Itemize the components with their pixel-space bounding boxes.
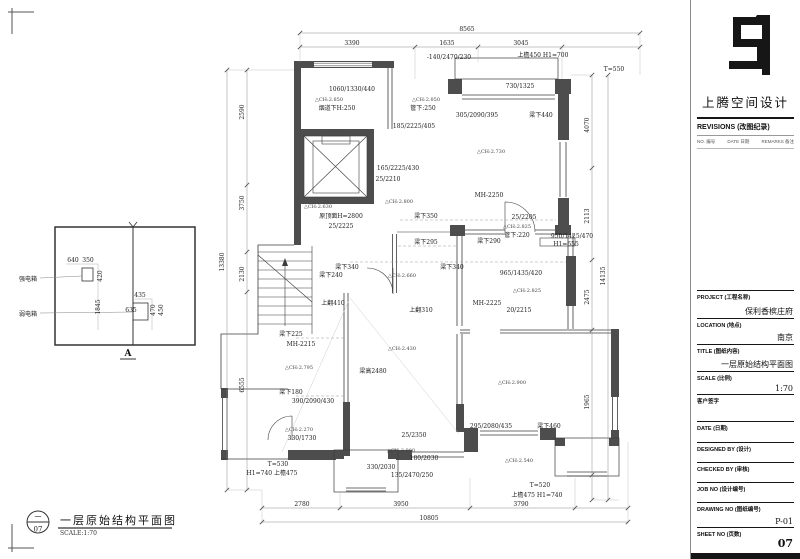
plan-annotation: 梁下240	[319, 271, 343, 279]
plan-annotation: 25/2205	[512, 214, 537, 221]
title-block-sidebar: 上腾空间设计 REVISIONS (改图纪录) NO. 编号 DATE 日期 R…	[690, 0, 800, 559]
plan-annotation: △CH:2.900	[498, 380, 526, 386]
plan-annotation: H1=655	[553, 241, 579, 248]
plan-annotation: △CH:2.850	[412, 97, 440, 103]
plan-annotation: 25/2210	[376, 176, 401, 183]
plan-annotation: 25/2225	[329, 223, 354, 230]
plan-annotation: T=520	[530, 482, 551, 489]
window-topleft	[314, 62, 372, 67]
plan-annotation: 435	[134, 292, 146, 299]
plan-annotation: 管下:220	[504, 231, 530, 239]
plan-annotation: 965/1435/420	[500, 270, 542, 277]
plan-annotation: 165/2225/430	[377, 165, 419, 172]
annotations-layer: 8565339016353045-140/2470/230上檐450 H1=70…	[19, 26, 624, 522]
field-title-value: 一层原始结构平面图	[721, 359, 793, 370]
field-job-no-label: JOB NO (设计编号)	[697, 483, 794, 493]
field-scale: SCALE (比例) 1:70	[697, 371, 794, 394]
plan-annotation: 1845	[95, 299, 102, 314]
floor-plan-svg: 一 07 一层原始结构平面图 SCALE:1:70 85653390163530…	[0, 0, 690, 559]
plan-annotation: MH-2215	[287, 341, 316, 348]
plan-annotation: 295/2080/435	[470, 423, 512, 430]
field-location-value: 南京	[777, 332, 793, 343]
field-project-value: 保利香槟庄府	[745, 306, 793, 317]
plan-annotation: A	[124, 349, 133, 359]
revisions-col-date: DATE 日期	[727, 139, 749, 145]
plan-annotation: 1965	[584, 394, 591, 409]
field-title: TITLE (图纸内容) 一层原始结构平面图	[697, 344, 794, 371]
plan-annotation: 470	[150, 304, 157, 316]
revisions-col-no: NO. 编号	[697, 139, 715, 145]
field-client-signature-label: 客户签字	[697, 395, 794, 405]
plan-annotation: 上檐450 H1=700	[518, 51, 569, 59]
plan-annotation: △CH:2.795	[285, 365, 313, 371]
bottom-bar	[691, 553, 800, 559]
walls-layer	[221, 61, 619, 460]
plan-annotation: △CH:2.430	[388, 346, 416, 352]
field-title-label: TITLE (图纸内容)	[697, 345, 794, 355]
field-designed-by-label: DESIGNED BY (设计)	[697, 443, 794, 453]
plan-annotation: 2475	[584, 289, 591, 304]
plan-annotation: 4070	[584, 117, 591, 132]
field-drawing-no-label: DRAWING NO (图纸编号)	[697, 503, 794, 513]
field-project: PROJECT (工程名称) 保利香槟庄府	[697, 290, 794, 318]
company-name: 上腾空间设计	[697, 90, 794, 117]
plan-annotation: 弱电箱	[19, 310, 37, 318]
plan-annotation: 330/1730	[288, 435, 317, 442]
field-sheet-no-value: 07	[778, 537, 793, 550]
plan-annotation: 420	[97, 270, 104, 282]
plan-annotation: 3950	[393, 501, 408, 508]
plan-annotation: 6555	[239, 377, 246, 392]
field-drawing-no-value: P-01	[775, 517, 793, 526]
plan-annotation: 640	[67, 257, 79, 264]
plan-annotation: 3750	[239, 195, 246, 210]
field-drawing-no: DRAWING NO (图纸编号) P-01	[697, 502, 794, 527]
plan-annotation: 350	[82, 257, 94, 264]
plan-annotation: △CH:2.800	[385, 199, 413, 205]
plan-annotation: 390/2090/430	[292, 398, 334, 405]
plan-annotation: MH-2225	[473, 300, 502, 307]
plan-annotation: △CH:2.825	[513, 288, 541, 294]
plan-annotation: 梁下295	[414, 238, 438, 246]
plan-annotation: 2113	[584, 208, 591, 223]
plan-annotation: T=550	[604, 66, 625, 73]
plan-annotation: 25/2350	[402, 432, 427, 439]
company-logo	[697, 4, 794, 90]
plan-annotation: H1=740 上檐475	[247, 469, 298, 477]
legend-circle-bottom: 07	[34, 526, 43, 534]
field-sheet-no: SHEET NO (页数) 07	[697, 527, 794, 551]
plan-annotation: 上翻310	[409, 306, 433, 314]
field-date-label: DATE (日期)	[697, 422, 794, 432]
field-designed-by: DESIGNED BY (设计)	[697, 442, 794, 462]
plan-annotation: 梁下340	[335, 263, 359, 271]
field-scale-value: 1:70	[775, 384, 793, 393]
plan-annotation: 管下:250	[410, 104, 436, 112]
beam-lines	[282, 220, 566, 452]
plan-annotation: 梁下225	[279, 330, 303, 338]
drawing-sheet: 一 07 一层原始结构平面图 SCALE:1:70 85653390163530…	[0, 0, 800, 559]
plan-annotation: 梁下350	[414, 212, 438, 220]
plan-annotation: 10805	[419, 515, 438, 522]
plan-annotation: 180/2030	[410, 455, 439, 462]
plan-annotation: 2780	[294, 501, 309, 508]
plan-annotation: △CH:2.630	[304, 204, 332, 210]
field-scale-label: SCALE (比例)	[697, 372, 794, 382]
plan-annotation: 13380	[219, 252, 226, 271]
field-location-label: LOCATION (地点)	[697, 319, 794, 329]
plan-annotation: 2130	[239, 266, 246, 281]
plan-annotation: 烟道下H:250	[319, 104, 356, 112]
plan-annotation: △CH:2.540	[505, 458, 533, 464]
plan-annotation: 730/1325	[506, 83, 535, 90]
legend-title: 一层原始结构平面图	[60, 513, 177, 527]
plan-annotation: -140/2470/230	[427, 54, 471, 61]
plan-annotation: 1060/1330/440	[329, 86, 375, 93]
plan-annotation: 强电箱	[19, 275, 37, 283]
revisions-title: REVISIONS (改图纪录)	[697, 122, 794, 136]
plan-annotation: 305/2090/395	[456, 112, 498, 119]
st-logo-icon	[707, 11, 785, 83]
plan-annotation: △CH:2.825	[503, 224, 531, 230]
plan-annotation: △CH:2.730	[477, 149, 505, 155]
field-location: LOCATION (地点) 南京	[697, 318, 794, 344]
detail-box	[40, 222, 195, 359]
plan-annotation: 135/2470/250	[391, 472, 433, 479]
plan-annotation: △CH:2.660	[388, 273, 416, 279]
field-job-no: JOB NO (设计编号)	[697, 482, 794, 502]
plan-annotation: 185/2225/405	[393, 123, 435, 130]
legend-circle-top: 一	[35, 513, 42, 521]
plan-annotation: 梁高2480	[359, 367, 386, 375]
plan-annotation: 梁下340	[440, 263, 464, 271]
plan-annotation: 3790	[513, 501, 528, 508]
plan-annotation: T=530	[268, 461, 289, 468]
plan-annotation: 梁下440	[529, 111, 553, 119]
field-date: DATE (日期)	[697, 421, 794, 442]
plan-annotation: △CH:2.270	[285, 427, 313, 433]
plan-annotation: 梁下180	[279, 388, 303, 396]
revisions-block: REVISIONS (改图纪录) NO. 编号 DATE 日期 REMARKS …	[697, 117, 794, 149]
plan-annotation: 8565	[459, 26, 474, 33]
plan-annotation: 2590	[239, 104, 246, 119]
plan-annotation: 635	[125, 307, 137, 314]
drawing-legend: 一 07 一层原始结构平面图 SCALE:1:70	[27, 511, 177, 537]
field-checked-by: CHECKED BY (审核)	[697, 462, 794, 482]
plan-annotation: 1635	[439, 40, 454, 47]
plan-annotation: △CH:2.850	[315, 97, 343, 103]
revisions-col-remarks: REMARKS 备注	[761, 139, 794, 145]
plan-annotation: 450	[158, 304, 165, 316]
plan-annotation: 原顶面H=2800	[319, 213, 363, 220]
plan-annotation: 3045	[513, 40, 528, 47]
plan-annotation: 20/2215	[507, 307, 532, 314]
plan-annotation: 950/1425/470	[551, 233, 593, 240]
plan-annotation: △CH:2.900	[387, 448, 415, 454]
plan-annotation: 梁下290	[477, 237, 501, 245]
legend-scale: SCALE:1:70	[60, 530, 97, 537]
plan-annotation: 上翻410	[321, 299, 345, 307]
field-client-signature: 客户签字	[697, 394, 794, 421]
stairs	[258, 246, 312, 334]
plan-annotation: 330/2030	[367, 464, 396, 471]
plan-annotation: 上檐475 H1=740	[512, 491, 563, 499]
field-checked-by-label: CHECKED BY (审核)	[697, 463, 794, 473]
plan-annotation: 14135	[600, 266, 607, 285]
plan-annotation: MH-2250	[475, 192, 504, 199]
field-project-label: PROJECT (工程名称)	[697, 291, 794, 301]
plan-annotation: 3390	[344, 40, 359, 47]
plan-annotation: 梁下460	[537, 422, 561, 430]
